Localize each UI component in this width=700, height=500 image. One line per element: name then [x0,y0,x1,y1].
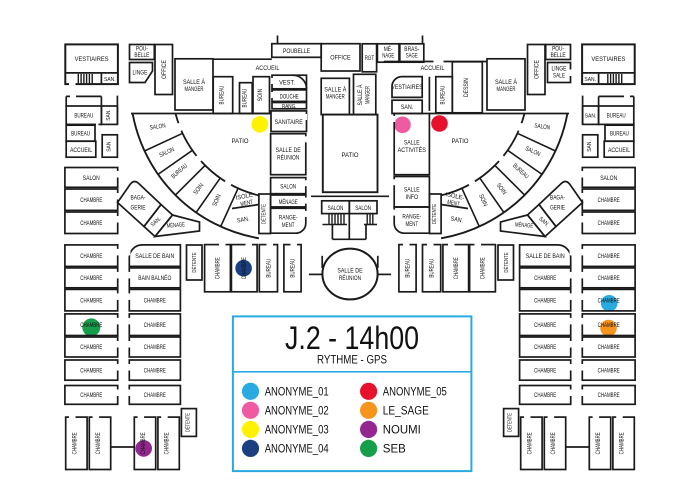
svg-text:CHAMBRE: CHAMBRE [598,392,620,399]
svg-text:CHAMBRE: CHAMBRE [534,297,556,304]
svg-text:CHAMBRE: CHAMBRE [534,322,556,329]
svg-text:SEB: SEB [383,443,406,455]
svg-text:CHAMBRE: CHAMBRE [80,253,102,260]
svg-text:RANGE-: RANGE- [279,215,298,222]
svg-text:SAN.: SAN. [104,77,116,83]
svg-text:MENT: MENT [282,222,295,229]
svg-text:BUREAU: BUREAU [429,258,436,277]
svg-text:MANGER: MANGER [497,86,516,93]
svg-text:CHAMBRE: CHAMBRE [550,432,557,454]
svg-text:PATIO: PATIO [232,138,249,145]
svg-text:CHAMBRE: CHAMBRE [95,432,102,454]
svg-text:BUREAU: BUREAU [405,258,412,277]
svg-text:SALON: SALON [280,183,296,190]
svg-text:DÉTENTE: DÉTENTE [260,204,267,224]
svg-text:RYTHME - GPS: RYTHME - GPS [317,355,387,367]
svg-text:SAGE: SAGE [406,54,418,60]
svg-text:SALON: SALON [355,205,371,212]
svg-text:ANONYME_03: ANONYME_03 [265,424,329,436]
svg-text:CHAMBRE: CHAMBRE [534,275,556,282]
svg-text:CHAMBRE: CHAMBRE [598,197,620,204]
svg-text:SANITAIRE: SANITAIRE [275,119,303,126]
svg-text:SAN.: SAN. [585,114,597,120]
svg-text:SALLE À: SALLE À [495,77,518,86]
svg-text:CHAMBRE: CHAMBRE [144,392,166,399]
svg-text:CHAMBRE: CHAMBRE [144,297,166,304]
svg-text:ACCUEIL: ACCUEIL [70,147,93,154]
svg-text:CHAMBRE: CHAMBRE [80,367,102,374]
svg-text:OFFICE: OFFICE [534,60,541,79]
svg-text:SALON: SALON [328,205,344,212]
svg-text:SALLE À: SALLE À [357,85,364,106]
svg-text:CHAMBRE: CHAMBRE [140,432,147,454]
svg-text:MANGER: MANGER [326,94,345,101]
svg-text:ACCUEIL: ACCUEIL [421,65,445,72]
svg-text:SALLE: SALLE [404,140,420,147]
svg-text:CHAMBRE: CHAMBRE [534,367,556,374]
svg-text:BUREAU: BUREAU [265,258,272,277]
svg-text:OFFICE: OFFICE [330,55,351,62]
svg-text:CHAMBRE: CHAMBRE [598,344,620,351]
svg-text:SALLE: SALLE [404,187,420,194]
svg-text:CHAMBRE: CHAMBRE [598,275,620,282]
svg-text:MENT: MENT [406,221,419,228]
svg-text:BUREAU: BUREAU [241,88,248,107]
svg-text:RANGE-: RANGE- [402,214,421,221]
svg-text:SALLE DE: SALLE DE [337,268,362,275]
svg-text:RGT: RGT [365,55,375,62]
svg-text:CHAMBRE: CHAMBRE [453,257,460,279]
svg-text:ACCUEIL: ACCUEIL [608,147,631,154]
svg-text:DÉTENTE: DÉTENTE [191,252,198,272]
svg-text:GERIE: GERIE [550,206,565,212]
svg-text:CHAMBRE: CHAMBRE [80,275,102,282]
svg-text:BUREAU: BUREAU [219,85,226,104]
svg-text:POUBELLE: POUBELLE [283,48,311,55]
svg-text:PATIO: PATIO [452,138,469,145]
svg-text:ACCUEIL: ACCUEIL [256,65,280,72]
svg-text:CHAMBRE: CHAMBRE [144,367,166,374]
svg-text:BAGA-: BAGA- [131,196,146,202]
svg-text:DOUCHE: DOUCHE [280,94,299,101]
svg-text:VESTIAIRES: VESTIAIRES [391,84,423,91]
svg-text:CHAMBRE: CHAMBRE [241,257,248,279]
svg-text:BUREAU: BUREAU [71,131,90,138]
svg-text:CHAMBRE: CHAMBRE [598,253,620,260]
svg-text:SALLE DE: SALLE DE [276,147,301,154]
svg-text:ANONYME_02: ANONYME_02 [265,405,329,417]
svg-text:MANGER: MANGER [185,86,204,93]
svg-text:SALLE À: SALLE À [324,85,347,94]
svg-text:MÉNAGE: MÉNAGE [515,221,534,229]
svg-text:CHAMBRE: CHAMBRE [80,297,102,304]
svg-text:CHAMBRE: CHAMBRE [215,257,222,279]
svg-text:PATIO: PATIO [342,152,359,159]
svg-text:VESTIAIRES: VESTIAIRES [75,56,109,63]
svg-text:SALON: SALON [83,175,100,182]
svg-text:CHAMBRE: CHAMBRE [80,220,102,227]
svg-text:ANONYME_04: ANONYME_04 [265,443,329,455]
svg-text:BUREAU: BUREAU [74,113,93,120]
svg-text:CHAMBRE: CHAMBRE [598,220,620,227]
svg-text:LINGE: LINGE [133,71,148,77]
svg-text:CHAMBRE: CHAMBRE [164,432,171,454]
svg-text:J.2 - 14h00: J.2 - 14h00 [285,320,419,356]
svg-text:SAN.: SAN. [107,140,113,152]
svg-text:LINGE: LINGE [552,67,567,73]
svg-text:CHAMBRE: CHAMBRE [598,367,620,374]
svg-text:GERIE: GERIE [131,206,146,212]
svg-text:CHAMBRE: CHAMBRE [534,392,556,399]
svg-text:BAIN BALNÉO: BAIN BALNÉO [138,275,171,282]
svg-text:CHAMBRE: CHAMBRE [595,432,602,454]
svg-text:ANONYME_05: ANONYME_05 [383,386,447,398]
svg-text:SALE: SALE [553,74,565,80]
svg-text:MÉNAGE: MÉNAGE [279,197,298,206]
svg-text:DÉTENTE: DÉTENTE [431,204,438,224]
svg-text:CHAMBRE: CHAMBRE [144,344,166,351]
svg-text:BELLE: BELLE [551,53,566,59]
svg-text:CHAMBRE: CHAMBRE [598,297,620,304]
svg-text:DÉTENTE: DÉTENTE [503,252,510,272]
svg-text:SAN.: SAN. [587,140,593,152]
svg-text:BUREAU: BUREAU [607,113,626,120]
svg-text:DESSIN: DESSIN [463,78,470,97]
svg-text:ACTIVITÉS: ACTIVITÉS [398,145,426,154]
svg-text:VESTIAIRES: VESTIAIRES [591,56,625,63]
svg-text:BRAS-: BRAS- [404,47,419,53]
svg-text:OFFICE: OFFICE [161,60,168,79]
svg-text:MÉNAGE: MÉNAGE [167,221,186,229]
svg-text:SAN.: SAN. [106,109,112,121]
svg-text:CHAMBRE: CHAMBRE [80,322,102,329]
svg-text:NAGE: NAGE [382,54,394,60]
svg-text:INFO: INFO [406,194,419,201]
svg-text:SALLE DE BAIN: SALLE DE BAIN [526,254,565,260]
svg-text:SALLE À: SALLE À [183,77,206,86]
svg-text:RANG.: RANG. [282,104,297,110]
svg-text:CHAMBRE: CHAMBRE [80,197,102,204]
svg-text:CHAMBRE: CHAMBRE [80,392,102,399]
svg-text:CHAMBRE: CHAMBRE [480,257,487,279]
svg-text:SAN.: SAN. [584,77,596,83]
svg-text:CHAMBRE: CHAMBRE [534,344,556,351]
svg-text:DÉTENTE: DÉTENTE [507,413,514,432]
svg-text:SALLE DE BAIN: SALLE DE BAIN [135,254,174,260]
svg-text:CHAMBRE: CHAMBRE [80,344,102,351]
svg-text:CHAMBRE: CHAMBRE [598,322,620,329]
svg-text:CHAMBRE: CHAMBRE [619,432,626,454]
svg-text:BAGA-: BAGA- [550,196,565,202]
svg-text:SAN.: SAN. [401,104,414,111]
svg-text:MÉ-: MÉ- [384,46,393,53]
svg-text:CHAMBRE: CHAMBRE [144,322,166,329]
svg-text:BUREAU: BUREAU [610,131,629,138]
svg-text:CHAMBRE: CHAMBRE [71,432,78,454]
svg-text:BUREAU: BUREAU [440,85,447,104]
svg-text:MANGER: MANGER [366,86,372,104]
svg-text:VEST.: VEST. [279,80,295,87]
svg-text:SOIN: SOIN [257,88,264,101]
svg-text:POU-: POU- [552,47,564,53]
svg-text:NOUMI: NOUMI [383,424,421,436]
svg-text:BUREAU: BUREAU [290,258,297,277]
svg-text:DÉTENTE: DÉTENTE [184,413,191,432]
svg-text:BELLE: BELLE [134,53,149,59]
svg-text:RÉUNION: RÉUNION [339,273,361,282]
svg-text:SALON: SALON [600,175,617,182]
svg-text:RÉUNION: RÉUNION [277,153,299,162]
svg-text:POU-: POU- [136,47,148,53]
svg-text:LE_SAGE: LE_SAGE [383,405,429,417]
svg-text:CHAMBRE: CHAMBRE [526,432,533,454]
svg-text:ANONYME_01: ANONYME_01 [265,386,329,398]
